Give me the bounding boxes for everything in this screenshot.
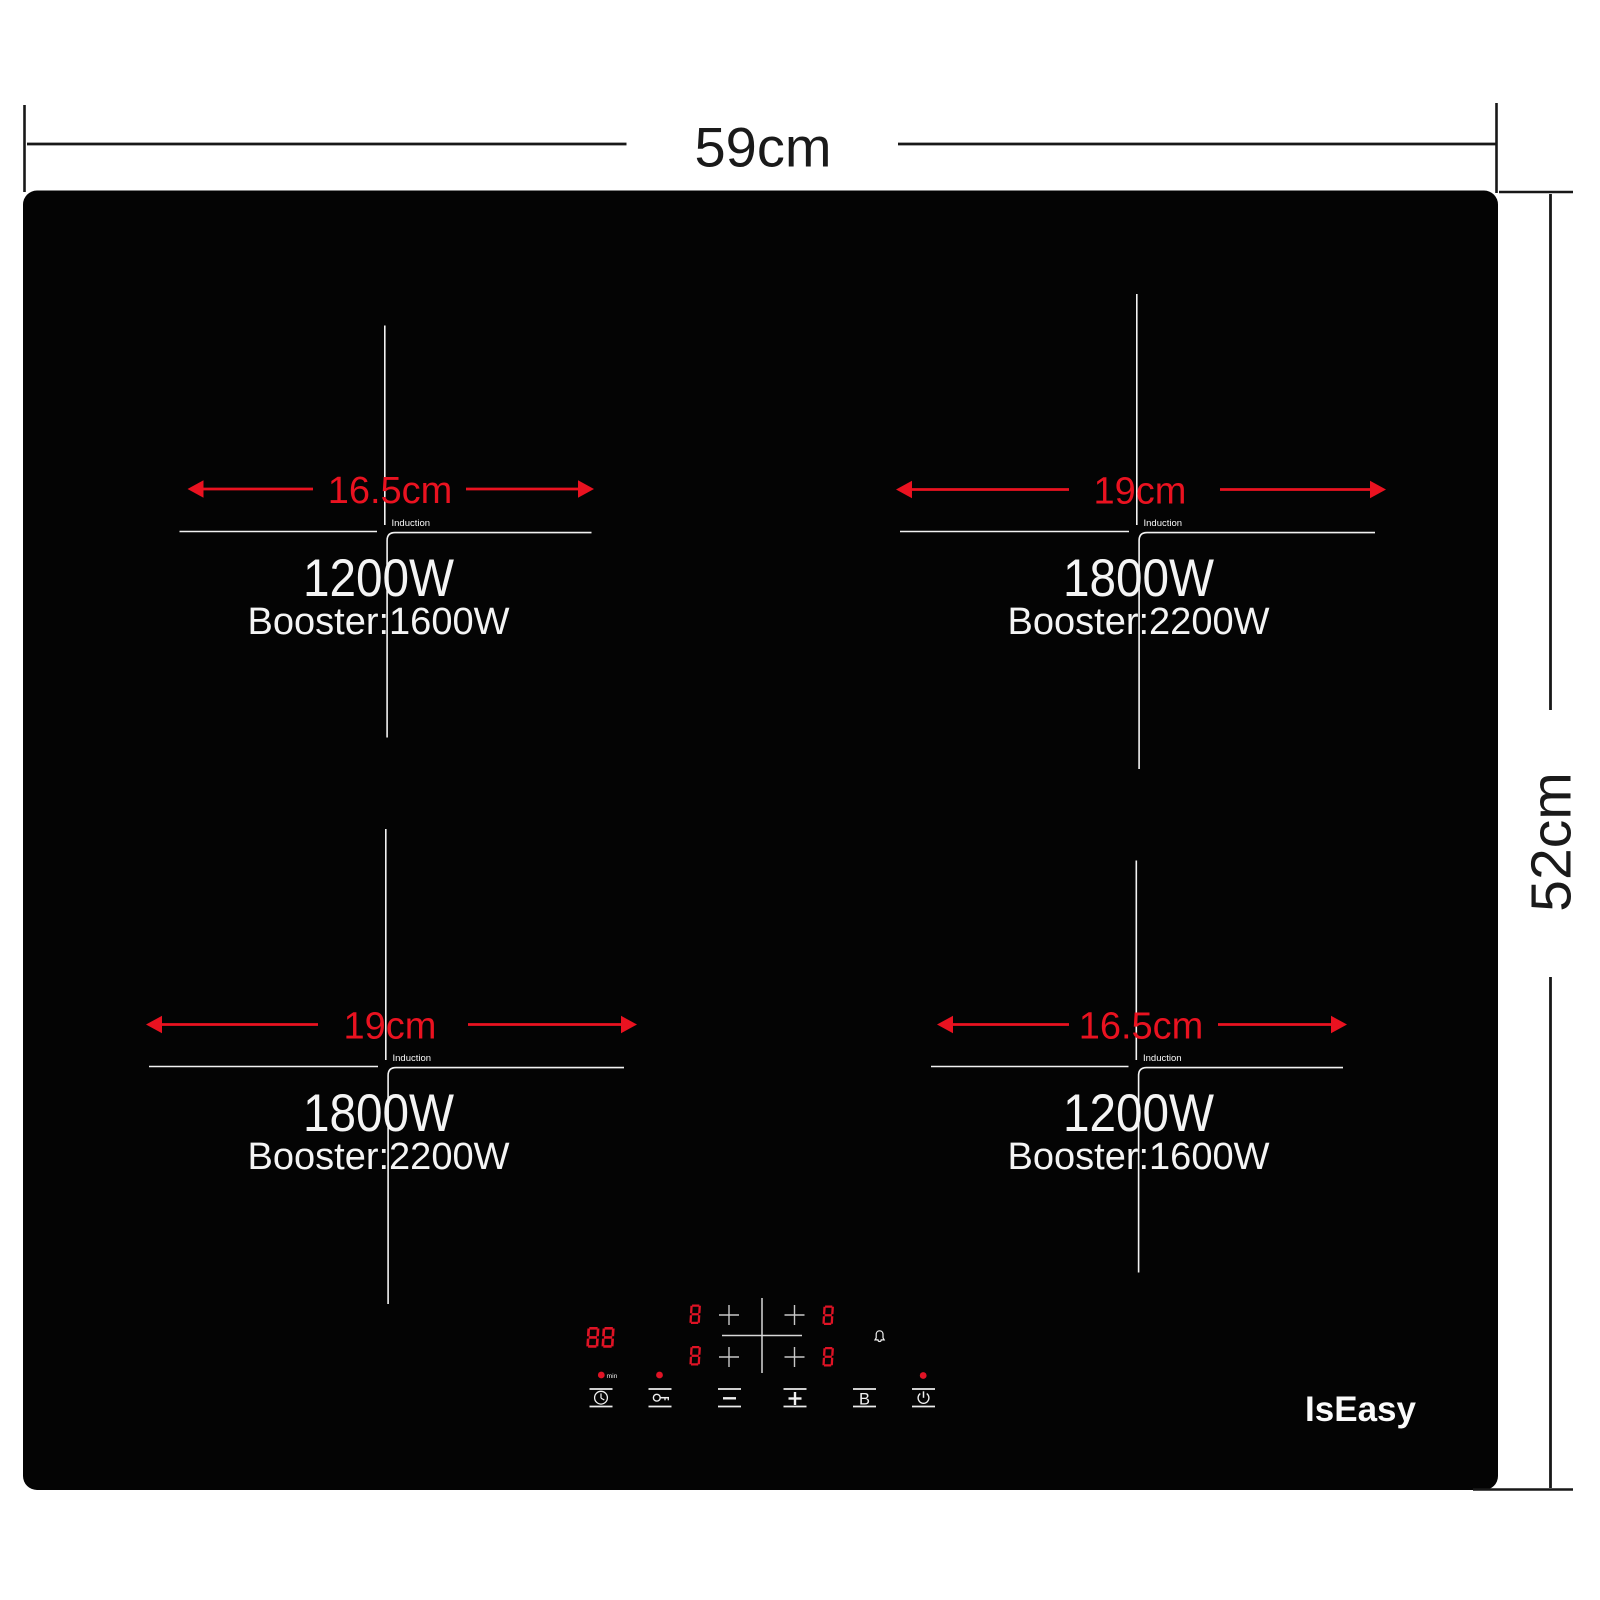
svg-text:19cm: 19cm	[1094, 471, 1187, 513]
svg-text:1800W: 1800W	[1063, 548, 1214, 608]
svg-text:52cm: 52cm	[1520, 772, 1584, 911]
svg-text:B: B	[859, 1391, 870, 1409]
svg-text:IsEasy: IsEasy	[1305, 1390, 1416, 1429]
svg-text:Booster:2200W: Booster:2200W	[248, 1136, 510, 1178]
svg-text:19cm: 19cm	[344, 1006, 437, 1048]
svg-text:Induction: Induction	[392, 518, 431, 529]
svg-text:Induction: Induction	[1144, 518, 1183, 529]
svg-text:min: min	[607, 1373, 618, 1380]
svg-text:1800W: 1800W	[303, 1083, 454, 1143]
svg-text:Booster:1600W: Booster:1600W	[1008, 1136, 1270, 1178]
svg-text:1200W: 1200W	[303, 548, 454, 608]
svg-text:Induction: Induction	[393, 1053, 432, 1064]
svg-text:Booster:1600W: Booster:1600W	[248, 601, 510, 643]
svg-text:16.5cm: 16.5cm	[328, 470, 453, 512]
svg-text:1200W: 1200W	[1063, 1083, 1214, 1143]
svg-text:59cm: 59cm	[695, 116, 832, 179]
svg-text:16.5cm: 16.5cm	[1079, 1006, 1204, 1048]
svg-text:Booster:2200W: Booster:2200W	[1008, 601, 1270, 643]
svg-text:Induction: Induction	[1143, 1053, 1182, 1064]
